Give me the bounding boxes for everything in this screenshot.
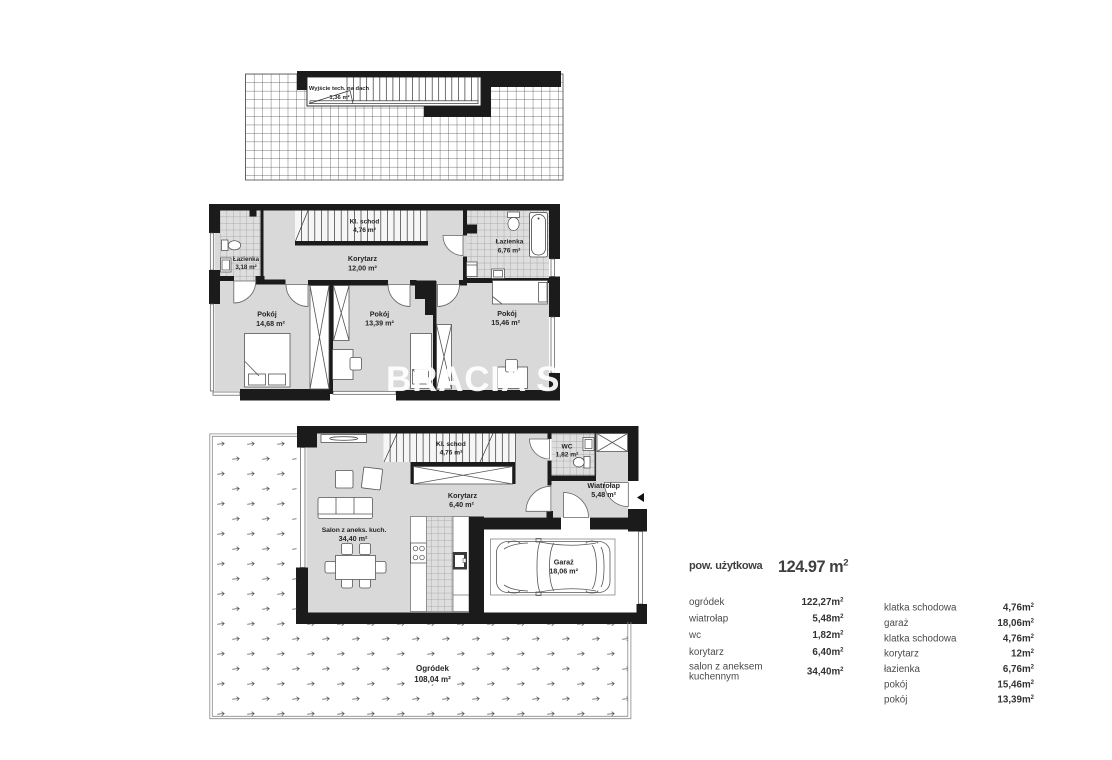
svg-text:korytarz: korytarz [884, 649, 919, 660]
svg-text:6,76 m²: 6,76 m² [498, 248, 522, 255]
svg-text:Łazienka: Łazienka [496, 239, 524, 246]
svg-text:13,39 m²: 13,39 m² [365, 319, 394, 328]
svg-text:6,40m2: 6,40m2 [812, 647, 844, 658]
svg-text:klatka schodowa: klatka schodowa [884, 603, 957, 614]
svg-text:Pokój: Pokój [370, 310, 390, 319]
svg-text:13,39m2: 13,39m2 [997, 695, 1034, 706]
svg-text:18,06 m²: 18,06 m² [549, 567, 578, 576]
svg-text:14,68 m²: 14,68 m² [256, 319, 285, 328]
svg-text:5,48m2: 5,48m2 [812, 613, 844, 624]
svg-text:108,04 m²: 108,04 m² [414, 675, 451, 684]
svg-text:4,76m2: 4,76m2 [1003, 603, 1035, 614]
svg-text:12,00 m²: 12,00 m² [348, 264, 377, 273]
svg-text:6,40 m²: 6,40 m² [449, 500, 474, 509]
svg-text:4,76 m²: 4,76 m² [440, 450, 464, 457]
svg-text:klatka schodowa: klatka schodowa [884, 634, 957, 645]
svg-text:6,76m2: 6,76m2 [1003, 664, 1035, 675]
svg-text:Ogródek: Ogródek [416, 664, 449, 673]
svg-text:Pokój: Pokój [497, 309, 517, 318]
svg-text:pow. użytkowa: pow. użytkowa [689, 560, 763, 572]
svg-text:kuchennym: kuchennym [689, 672, 739, 683]
svg-text:pokój: pokój [884, 695, 907, 706]
svg-text:Pokój: Pokój [257, 310, 277, 319]
svg-text:wiatrołap: wiatrołap [688, 613, 729, 624]
svg-text:Kl. schod: Kl. schod [350, 219, 380, 226]
svg-text:18,06m2: 18,06m2 [997, 618, 1034, 629]
svg-text:34,40m2: 34,40m2 [807, 667, 844, 678]
svg-text:BRACIA S: BRACIA S [386, 360, 560, 399]
svg-text:Salon z aneks. kuch.: Salon z aneks. kuch. [322, 527, 387, 534]
svg-text:pokój: pokój [884, 680, 907, 691]
svg-text:ogródek: ogródek [689, 597, 725, 608]
svg-text:5,48 m²: 5,48 m² [591, 490, 616, 499]
svg-text:garaż: garaż [884, 618, 909, 629]
svg-text:wc: wc [688, 630, 701, 641]
svg-text:15,46m2: 15,46m2 [997, 680, 1034, 691]
svg-text:3,18 m²: 3,18 m² [235, 264, 256, 271]
svg-text:Kl. schod: Kl. schod [436, 441, 466, 448]
svg-text:Łazienka: Łazienka [233, 256, 260, 263]
svg-text:1,82m2: 1,82m2 [812, 630, 844, 641]
svg-text:korytarz: korytarz [689, 647, 724, 658]
svg-text:15,46 m²: 15,46 m² [491, 318, 520, 327]
svg-text:4,76 m²: 4,76 m² [353, 227, 377, 234]
svg-text:1,82 m²: 1,82 m² [556, 452, 580, 459]
svg-text:Korytarz: Korytarz [448, 491, 478, 500]
svg-text:124.97 m2: 124.97 m2 [778, 558, 848, 577]
svg-text:Wiatrołap: Wiatrołap [587, 481, 620, 490]
svg-text:Garaż: Garaż [554, 558, 574, 567]
svg-text:WC: WC [562, 444, 573, 451]
svg-text:122,27m2: 122,27m2 [801, 597, 844, 608]
svg-text:Wyjście tech. na dach: Wyjście tech. na dach [309, 86, 370, 92]
svg-text:4,76m2: 4,76m2 [1003, 634, 1035, 645]
svg-text:łazienka: łazienka [884, 664, 920, 675]
svg-text:1,36 m²: 1,36 m² [329, 94, 349, 101]
svg-text:34,40 m²: 34,40 m² [339, 534, 368, 543]
svg-text:12m2: 12m2 [1011, 649, 1035, 660]
svg-text:Korytarz: Korytarz [348, 254, 378, 263]
